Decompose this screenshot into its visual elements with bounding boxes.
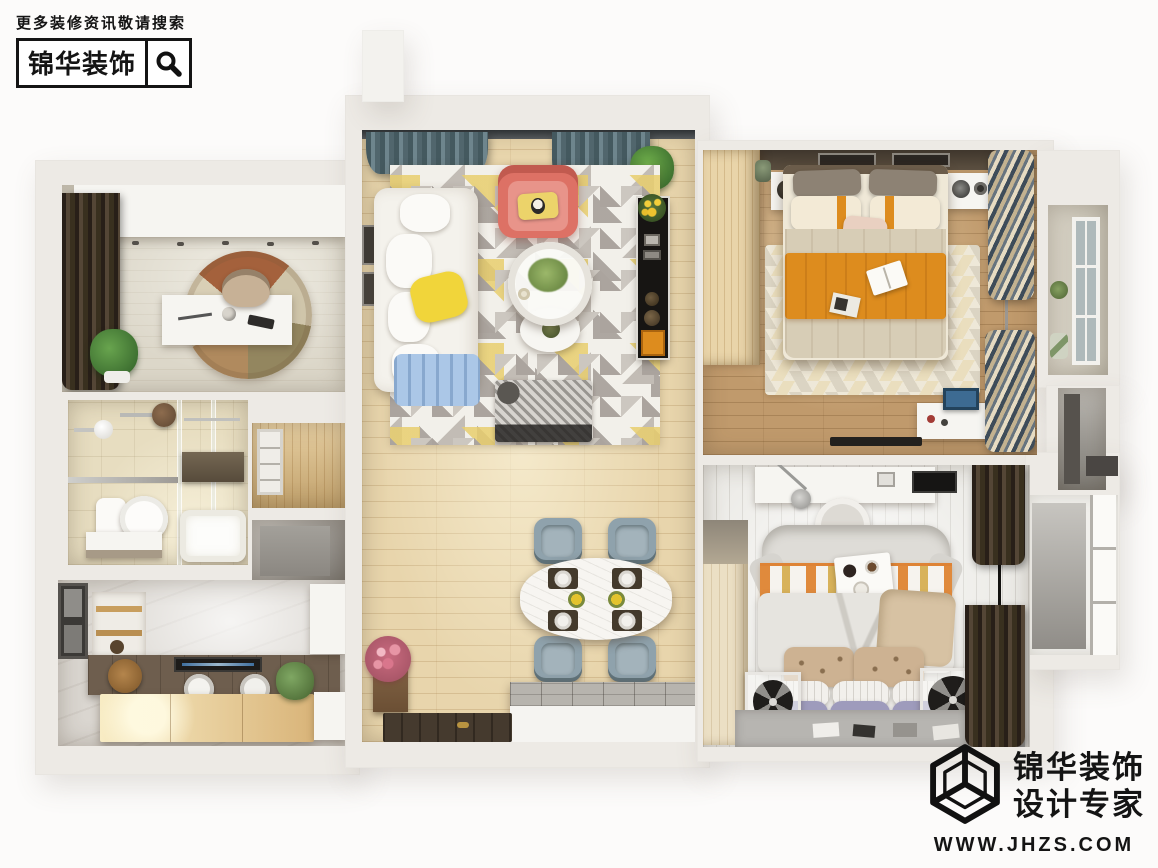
second-bedroom	[703, 465, 1030, 747]
study-chair	[222, 269, 270, 307]
nightstand-plant	[755, 160, 771, 182]
ceiling-spotlight	[267, 242, 274, 246]
coffee-maker	[110, 640, 124, 654]
bath-vanity	[86, 532, 162, 558]
watermark-bottom: 锦华装饰 设计专家 WWW.JHZS.COM	[923, 742, 1145, 857]
laptop	[943, 388, 979, 410]
wardrobe	[703, 150, 760, 365]
photo-frame	[877, 472, 895, 487]
kitchen-cabinets	[100, 694, 314, 742]
window-mullion	[1090, 547, 1116, 550]
appliance-niche	[92, 592, 146, 660]
hall-niche-cabinet	[252, 423, 345, 508]
ceiling-spotlight	[177, 242, 184, 246]
coffee-cup	[864, 559, 879, 574]
cabinet-shelf	[260, 447, 280, 449]
cooktop	[174, 657, 262, 672]
wall-lamp-globe	[94, 420, 113, 439]
red-armchair	[498, 165, 578, 238]
entry-mat	[383, 713, 512, 742]
perfume-bottles	[941, 419, 948, 426]
kitchen-cabinet-right	[314, 692, 345, 740]
table-plant	[528, 258, 568, 292]
shower-head	[152, 403, 176, 427]
window-mullion	[1085, 217, 1087, 365]
living-room	[362, 130, 695, 742]
placemat	[548, 568, 578, 589]
niche-shadow-panel	[260, 526, 330, 576]
magazine	[853, 724, 876, 738]
magazine	[893, 723, 917, 737]
magazine-print	[834, 297, 848, 311]
orange-drawer	[641, 330, 665, 356]
kitchen	[58, 580, 345, 746]
striped-curtain	[988, 150, 1034, 300]
sofa	[374, 188, 478, 392]
tablet	[912, 471, 957, 493]
cabinet-shelf	[260, 479, 280, 481]
gray-pillow	[869, 169, 938, 197]
gray-panel	[1032, 503, 1086, 649]
striped-curtain	[985, 330, 1035, 452]
headphones	[974, 182, 987, 195]
coffee-table	[508, 242, 592, 326]
study-room	[62, 185, 345, 392]
tv-console	[638, 198, 668, 358]
plant-pot	[104, 371, 130, 383]
brand-search-box: 锦华装饰	[16, 38, 192, 88]
kitchen-plant	[276, 662, 314, 700]
balcony	[1048, 205, 1108, 375]
coffee-cup	[843, 564, 857, 578]
photo-frame	[644, 234, 660, 246]
desk-lamp	[791, 489, 811, 509]
placemat	[612, 610, 642, 631]
face-print	[530, 198, 545, 215]
brand-name: 锦华装饰	[19, 41, 145, 85]
balcony-plant	[1050, 281, 1068, 299]
dining-chair	[534, 636, 582, 682]
window-mullion	[1072, 315, 1100, 318]
wood-shelf	[96, 606, 142, 612]
dining-table	[520, 558, 672, 640]
bedroom2-curtain	[972, 465, 1025, 565]
mirror-strip	[68, 477, 178, 483]
gray-pillow	[793, 169, 862, 197]
photo-frame	[643, 250, 661, 260]
flower-centerpiece	[568, 591, 585, 608]
placemat	[548, 610, 578, 631]
hall-niche-gray	[252, 520, 345, 582]
magazine	[813, 722, 840, 738]
balcony-window	[1072, 217, 1100, 365]
cabinet-seam	[242, 694, 243, 742]
window-pane	[64, 625, 82, 653]
kitchen-column	[310, 584, 345, 654]
bathroom	[68, 400, 248, 565]
ceiling-spotlight	[312, 241, 319, 245]
bedroom2-curtain	[965, 605, 1025, 747]
bedroom2-window-bay	[1028, 495, 1118, 655]
glass-cabinet	[257, 429, 283, 495]
nightstand	[947, 173, 991, 209]
watermark-top: 更多装修资讯敬请搜索 锦华装饰	[16, 12, 192, 88]
book-spine	[883, 267, 892, 289]
floorplan-render: 更多装修资讯敬请搜索 锦华装饰	[0, 0, 1158, 868]
brand-website: WWW.JHZS.COM	[923, 834, 1145, 857]
orange-blanket	[785, 253, 946, 319]
bathtub	[180, 510, 246, 562]
wardrobe-top	[703, 520, 748, 564]
perfume-bottles	[927, 415, 935, 423]
sofa-pillow	[400, 194, 450, 232]
window-pane	[64, 589, 82, 617]
ceiling-spotlight	[222, 241, 229, 245]
magazine	[932, 724, 959, 741]
lamp-arm	[777, 465, 807, 490]
pen	[178, 313, 212, 321]
tv-bench	[830, 437, 922, 446]
brand-name: 锦华装饰	[1013, 750, 1145, 787]
desk-ball	[222, 307, 236, 321]
dining-chair	[608, 636, 656, 682]
towel-bar	[184, 418, 240, 421]
cabinet-seam	[170, 694, 171, 742]
search-icon	[145, 41, 189, 85]
slippers	[457, 722, 469, 728]
face-print-pillow	[517, 192, 559, 221]
potted-plant	[90, 329, 138, 377]
window-slit	[1090, 495, 1116, 655]
ceiling-spotlight	[132, 241, 139, 245]
wooden-board	[108, 659, 142, 693]
watermark-caption: 更多装修资讯敬请搜索	[16, 12, 192, 33]
blue-blanket	[394, 354, 480, 406]
stapler	[247, 314, 275, 329]
leaf-pillow	[1050, 333, 1068, 359]
pink-flowers	[365, 636, 411, 682]
sunflower-vase	[638, 194, 666, 222]
bath-shelf	[182, 452, 244, 482]
speaker	[952, 180, 970, 198]
wood-shelf	[96, 630, 142, 636]
brand-tagline: 设计专家	[1013, 787, 1145, 824]
decor-bowl	[645, 292, 659, 306]
cabinet-shelf	[260, 463, 280, 465]
window-mullion	[1072, 265, 1100, 268]
dining-chair	[608, 518, 656, 564]
corner-window-frame	[1086, 456, 1118, 476]
cube-logo-icon	[923, 742, 1007, 831]
tray-organizers	[510, 682, 695, 706]
sideboard	[510, 682, 695, 742]
dining-chair	[534, 518, 582, 564]
master-bedroom	[703, 150, 1037, 455]
wall-chimney	[362, 30, 404, 102]
double-bed	[783, 165, 948, 360]
storage-bench	[495, 380, 592, 442]
kitchen-window	[58, 583, 88, 659]
decor-bowl	[644, 310, 660, 326]
placemat	[612, 568, 642, 589]
candle	[518, 288, 530, 300]
dark-window	[1064, 394, 1080, 484]
window-mullion	[1090, 601, 1116, 604]
flower-centerpiece	[608, 591, 625, 608]
flame-strip	[182, 663, 254, 666]
